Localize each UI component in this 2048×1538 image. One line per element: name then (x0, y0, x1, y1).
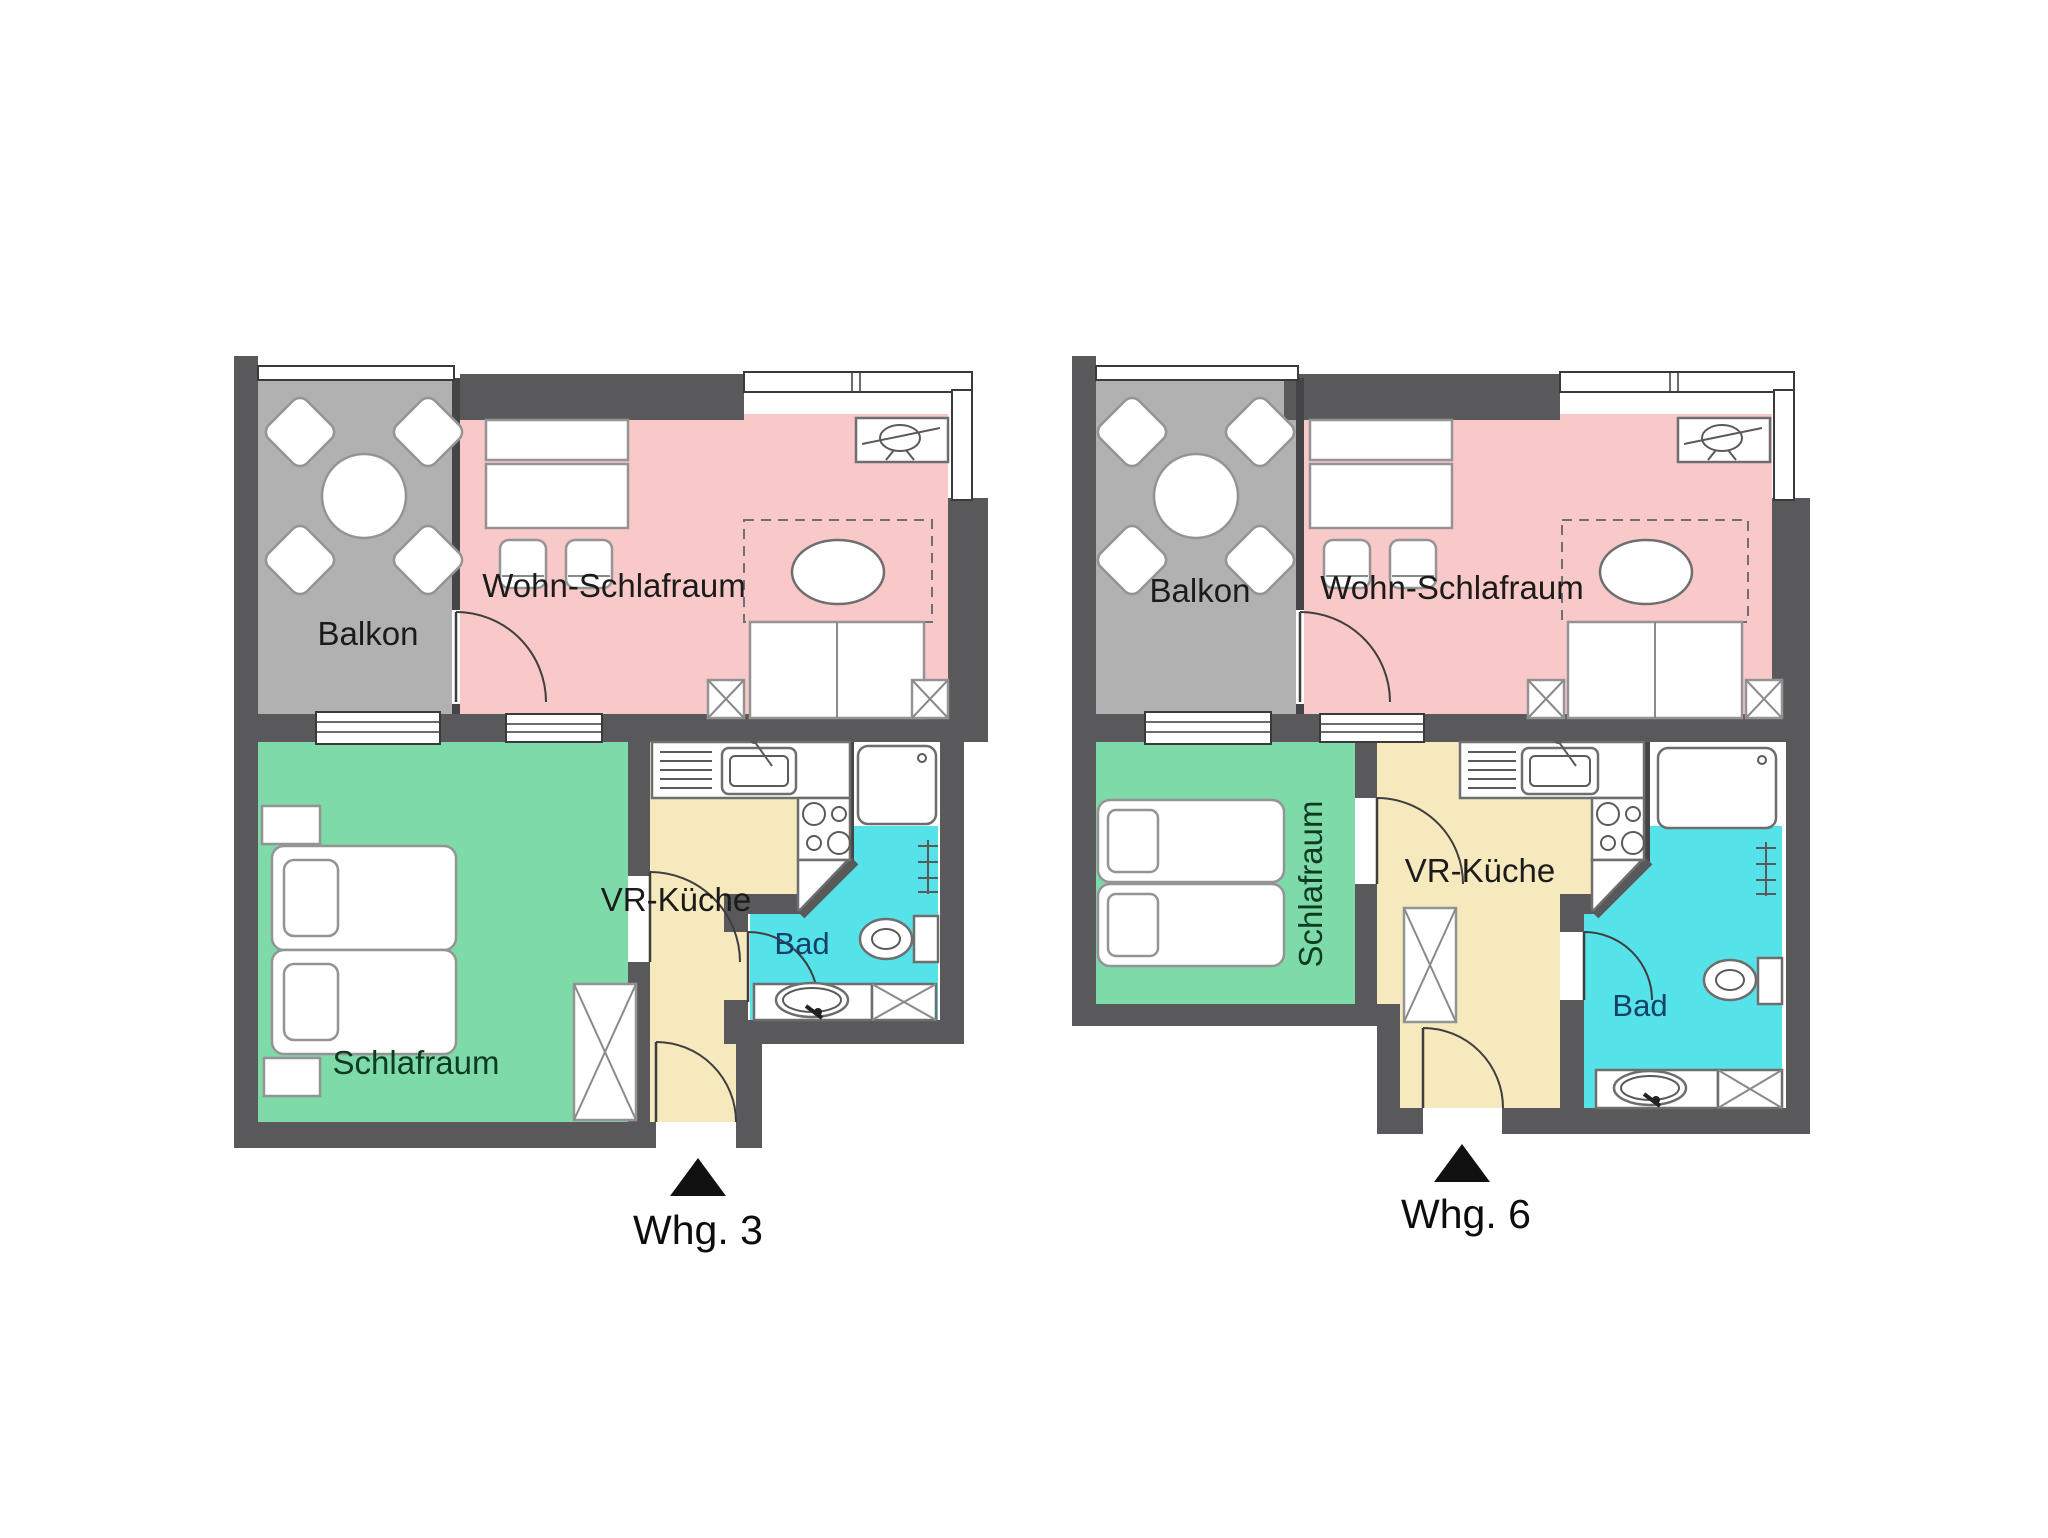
wall-right-upper (948, 498, 988, 742)
bath-label: Bad (774, 926, 829, 961)
apartment-whg3: Balkon Wohn-Schlafraum Schlafraum VR-Küc… (234, 356, 988, 1253)
apartment-whg6: Balkon Wohn-Schlafraum Schlafraum VR-Küc… (1072, 356, 1810, 1237)
sink-icon (722, 748, 796, 794)
vanity-sink-icon (754, 983, 872, 1020)
wardrobe-icon (1310, 420, 1452, 528)
window-bedroom (316, 712, 440, 744)
tv-icon (856, 418, 948, 462)
shower-icon (858, 746, 936, 824)
wall-bath-left-b (724, 1000, 748, 1044)
toilet-icon (860, 916, 938, 962)
wall-bath-top-left (748, 894, 802, 914)
window-top (1560, 372, 1794, 392)
wardrobe-icon (1404, 908, 1456, 1022)
living-doorway-threshold (506, 714, 602, 742)
window-top (744, 372, 972, 392)
hall-kitchen-label: VR-Küche (1405, 852, 1555, 889)
table-icon (1600, 540, 1692, 604)
balcony-label: Balkon (1150, 572, 1251, 609)
floor-plan-canvas: Balkon Wohn-Schlafraum Schlafraum VR-Küc… (0, 0, 2048, 1538)
window-right (952, 390, 972, 500)
hall-kitchen-label: VR-Küche (601, 881, 751, 918)
kitchen-counter-icon (1460, 736, 1644, 798)
bedroom-label: Schlafraum (333, 1044, 500, 1081)
wall-bath-bottom (724, 1020, 964, 1044)
wall-hall-right (736, 1032, 762, 1132)
balcony-railing (1096, 366, 1298, 380)
wall-left (1072, 356, 1096, 1026)
wall-top (460, 374, 744, 420)
wall-top (1284, 374, 1560, 420)
living-label: Wohn-Schlafraum (1320, 569, 1584, 606)
window-right (1774, 390, 1794, 500)
table-icon (792, 540, 884, 604)
living-label: Wohn-Schlafraum (482, 567, 746, 604)
wall-hall-left-low (1377, 1026, 1400, 1118)
kitchen-counter-icon (652, 736, 850, 798)
twin-beds-icon (1098, 800, 1284, 966)
wardrobe-icon (574, 984, 636, 1120)
apartment-name: Whg. 6 (1401, 1191, 1531, 1237)
entrance-marker (670, 1158, 726, 1196)
bedroom-label: Schlafraum (1292, 801, 1329, 968)
wall-bath-right (940, 742, 964, 1044)
wall-left (234, 356, 258, 1148)
vanity-sink-icon (1596, 1070, 1718, 1108)
floor-plans-svg: Balkon Wohn-Schlafraum Schlafraum VR-Küc… (0, 0, 2048, 1538)
wardrobe-icon (486, 420, 628, 528)
double-bed-icon (750, 622, 924, 718)
double-bed-icon (1568, 622, 1742, 718)
wall-bath-left-b (1560, 1000, 1584, 1118)
living-doorway-threshold (1320, 714, 1424, 742)
bath-label: Bad (1612, 988, 1667, 1023)
washing-machine-icon (1718, 1070, 1782, 1108)
tv-icon (1678, 418, 1770, 462)
sink-icon (1522, 748, 1598, 794)
balcony-label: Balkon (318, 615, 419, 652)
window-bedroom (1145, 712, 1271, 744)
entrance-marker (1434, 1144, 1490, 1182)
shower-icon (1658, 748, 1776, 828)
balcony-railing (258, 366, 454, 380)
wall-bath-right (1786, 742, 1810, 1134)
wall-bedroom-bottom (1072, 1004, 1400, 1026)
wall-bath-left-a (1560, 894, 1584, 932)
apartment-name: Whg. 3 (633, 1207, 763, 1253)
washing-machine-icon (872, 984, 936, 1020)
toilet-icon (1704, 958, 1782, 1004)
